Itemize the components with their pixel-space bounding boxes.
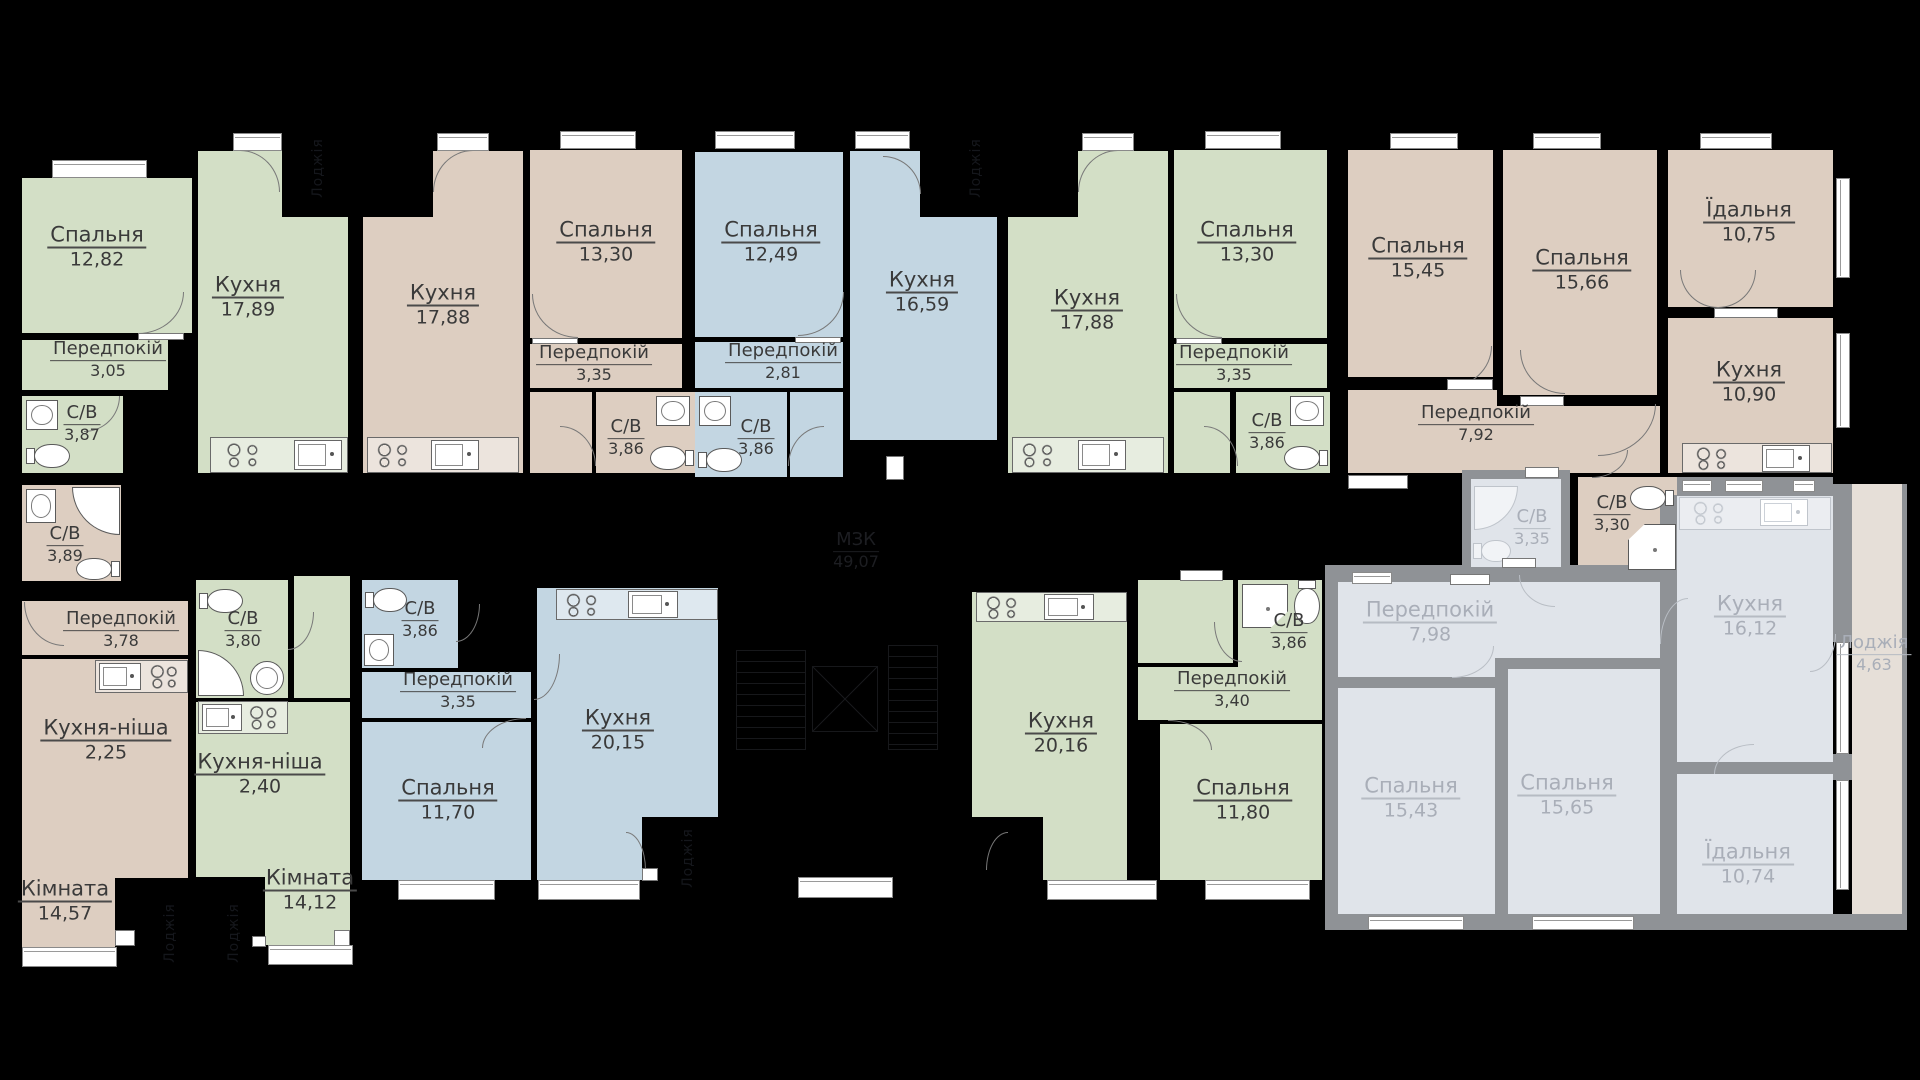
window: [1205, 880, 1310, 900]
room-label: Передпокій2,81: [725, 342, 841, 382]
room-label: Кімната14,12: [263, 867, 357, 914]
window: [268, 945, 353, 965]
room-label: Кухня16,59: [886, 269, 958, 316]
window: [52, 160, 147, 178]
room-label: Передпокій3,35: [1176, 344, 1292, 384]
room-label: С/В3,86: [738, 418, 775, 458]
sink-icon: [99, 663, 141, 690]
room-label: Спальня11,70: [398, 777, 497, 824]
room-label: С/В3,80: [225, 610, 262, 650]
window: [437, 133, 489, 151]
window-sill: [1368, 916, 1464, 930]
balcony-recess: [1008, 151, 1078, 217]
entry-door: [1180, 570, 1223, 581]
room-label: Спальня13,30: [1197, 219, 1296, 266]
balcony-caption: Лоджія: [310, 138, 326, 198]
window: [1205, 131, 1281, 149]
window: [1533, 133, 1601, 149]
room-label: С/В3,35: [1514, 508, 1551, 548]
window: [398, 880, 495, 900]
room-label: Спальня15,45: [1368, 235, 1467, 282]
window: [22, 947, 117, 967]
room-label: Спальня15,65: [1517, 772, 1616, 819]
door-gap: [1502, 558, 1536, 568]
sink-icon: [431, 440, 479, 470]
washer-icon: [699, 396, 731, 426]
washer-icon: [364, 634, 394, 666]
room-label: С/В3,87: [64, 404, 101, 444]
room-label: С/В3,86: [608, 418, 645, 458]
toilet-icon: [1630, 486, 1666, 510]
room-label: Спальня11,80: [1193, 777, 1292, 824]
stove-icon: [562, 592, 606, 618]
room-label: С/В3,89: [47, 525, 84, 565]
washer-icon: [250, 661, 284, 695]
room-label: Передпокій7,98: [1363, 599, 1497, 646]
balcony-recess: [363, 151, 433, 217]
room-label: Передпокій7,92: [1418, 404, 1534, 444]
apt10-loggia[interactable]: [1852, 484, 1902, 914]
sink-icon: [628, 591, 678, 618]
room-label: Кухня-ніша2,40: [194, 751, 325, 798]
room-label: Кімната14,57: [18, 878, 112, 925]
window: [1047, 880, 1157, 900]
washer-icon: [26, 400, 58, 430]
core-label: МЗК49,07: [833, 531, 879, 571]
wall: [1508, 658, 1660, 669]
sink-icon: [1762, 445, 1810, 472]
room-label: С/В3,30: [1594, 494, 1631, 534]
staircase-icon: [736, 650, 806, 750]
room-label: Спальня15,43: [1361, 775, 1460, 822]
balcony-caption: Лоджія: [162, 903, 178, 963]
wall: [1833, 484, 1852, 642]
floor-plan: Спальня12,82 Кухня17,89 Передпокій3,05 С…: [0, 0, 1920, 1080]
apt10-hall[interactable]: [1495, 582, 1660, 658]
core-door: [886, 456, 904, 480]
window: [1836, 333, 1850, 428]
room-label: Кухня10,90: [1713, 359, 1785, 406]
room-label: Спальня12,82: [47, 224, 146, 271]
room-label: Передпокій3,35: [536, 344, 652, 384]
stove-icon: [1018, 441, 1062, 469]
elevator-icon: [812, 666, 878, 732]
room-label: Кухня17,88: [407, 282, 479, 329]
wall: [1833, 754, 1852, 780]
door-gap: [1714, 308, 1778, 318]
wall: [1677, 762, 1833, 774]
wall: [1561, 470, 1570, 572]
wall: [1462, 470, 1471, 572]
room-label: Лоджія4,63: [1836, 634, 1911, 674]
sink-icon: [294, 440, 342, 470]
staircase-icon: [888, 645, 938, 750]
room-label: С/В3,86: [402, 600, 439, 640]
loggia-window: [1836, 780, 1849, 890]
window: [560, 131, 636, 149]
toilet-icon: [34, 444, 70, 468]
room-label: Спальня15,66: [1532, 247, 1631, 294]
window: [1836, 178, 1850, 278]
room-label: Спальня12,49: [721, 219, 820, 266]
room-label: Передпокій3,40: [1174, 670, 1290, 710]
wall: [1495, 658, 1508, 914]
stove-icon: [1692, 446, 1736, 471]
stove-icon: [222, 441, 268, 469]
window-sill: [1532, 916, 1634, 930]
balcony-door: [252, 936, 266, 947]
balcony-caption: Лоджія: [968, 138, 984, 198]
room-label: Кухня16,12: [1714, 593, 1786, 640]
window: [715, 131, 795, 149]
stove-icon: [982, 595, 1026, 620]
window: [855, 131, 910, 149]
door-gap: [1525, 467, 1559, 478]
sink-icon: [1078, 440, 1126, 470]
washer-icon: [26, 489, 56, 523]
room-label: Передпокій3,35: [400, 671, 516, 711]
room-label: Кухня-ніша2,25: [40, 717, 171, 764]
door-arc: [1592, 450, 1628, 478]
wall: [1325, 565, 1338, 923]
washer-icon: [656, 396, 690, 426]
door-gap: [1447, 379, 1493, 390]
wall: [1338, 677, 1495, 688]
balcony-caption: Лоджія: [680, 828, 696, 888]
door-arc: [1204, 426, 1238, 466]
window: [233, 133, 282, 151]
balcony-door: [115, 930, 135, 946]
toilet-icon: [650, 446, 686, 470]
room-label: Спальня13,30: [556, 219, 655, 266]
room-label: Їдальня10,74: [1702, 841, 1794, 888]
toilet-icon: [1284, 446, 1320, 470]
window: [1682, 480, 1712, 492]
sink-icon: [1044, 594, 1094, 620]
window: [1082, 133, 1134, 151]
balcony-door: [334, 930, 350, 946]
balcony-caption: Лоджія: [226, 903, 242, 963]
stove-icon: [247, 704, 284, 731]
room-label: С/В3,86: [1249, 412, 1286, 452]
door-gap: [1450, 574, 1490, 585]
sink-icon: [202, 704, 242, 731]
window: [1793, 480, 1815, 492]
entry-door: [642, 868, 658, 881]
window: [1390, 133, 1458, 149]
door-gap: [1348, 475, 1408, 489]
room-label: Кухня20,15: [582, 707, 654, 754]
washer-icon: [1290, 396, 1324, 426]
door-arc: [456, 604, 480, 642]
stove-icon: [148, 663, 184, 690]
window: [1352, 572, 1392, 584]
window: [1725, 480, 1763, 492]
room-label: Передпокій3,78: [63, 610, 179, 650]
stove-icon: [373, 441, 417, 469]
room-label: Передпокій3,05: [50, 340, 166, 380]
room-label: С/В3,86: [1271, 612, 1308, 652]
stove-icon: [1689, 500, 1733, 526]
room-label: Їдальня10,75: [1703, 199, 1795, 246]
window: [798, 877, 893, 898]
window: [1700, 133, 1772, 149]
room-label: Кухня20,16: [1025, 710, 1097, 757]
window: [538, 880, 640, 900]
sink-icon: [1760, 499, 1808, 526]
room-label: Кухня17,89: [212, 274, 284, 321]
room-label: Кухня17,88: [1051, 287, 1123, 334]
balcony-recess: [920, 151, 997, 217]
